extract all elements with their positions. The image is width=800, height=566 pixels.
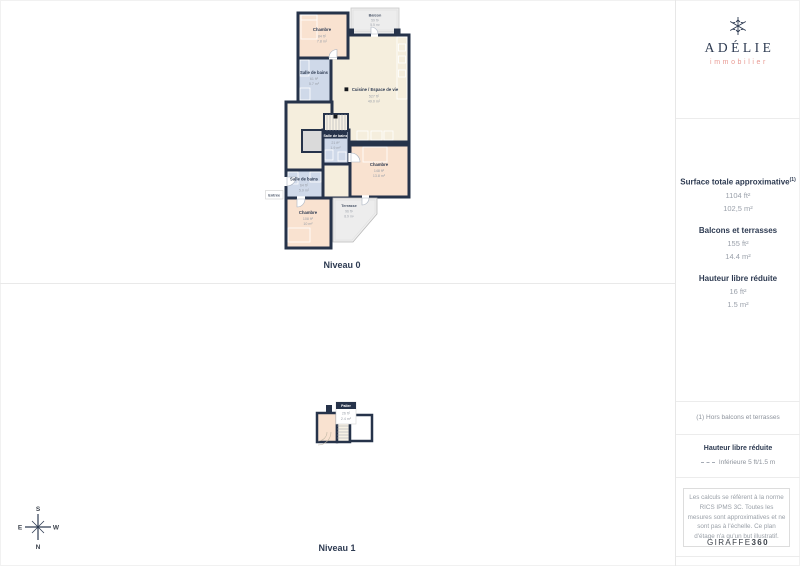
height-legend-value: Inférieure 5 ft/1.5 m bbox=[719, 459, 775, 466]
cuisine-area-m: 49.0 m² bbox=[368, 100, 381, 104]
chambre-right-area-ft: 148 ft² bbox=[374, 169, 385, 173]
surface-group: Surface totale approximative(1) 1104 ft²… bbox=[676, 177, 800, 213]
compass-rose: S N E W bbox=[18, 506, 60, 551]
sdb-left-area-m: 5.9 m² bbox=[299, 189, 310, 193]
balcon-label: Balcon bbox=[369, 14, 382, 18]
sdb-left-label: Salle de bains bbox=[290, 177, 319, 182]
chambre-bottom-area-m: 10 m² bbox=[303, 222, 313, 226]
surface-ft: 1104 ft² bbox=[676, 191, 800, 200]
sdb-mid-area-ft: 21 ft² bbox=[331, 141, 340, 145]
divider bbox=[676, 556, 800, 557]
balconies-m: 14.4 m² bbox=[676, 252, 800, 261]
brand-subtitle: immobilier bbox=[676, 59, 800, 66]
metrics-block: Surface totale approximative(1) 1104 ft²… bbox=[676, 177, 800, 322]
balcon-area-ft: 59 ft² bbox=[371, 19, 380, 23]
palier-room bbox=[317, 413, 337, 442]
balconies-ft: 155 ft² bbox=[676, 239, 800, 248]
floorplan-page: Chambre 84 ft² 7.8 m² Balcon 59 ft² 5.5 … bbox=[0, 0, 800, 566]
balconies-group: Balcons et terrasses 155 ft² 14.4 m² bbox=[676, 226, 800, 261]
chambre-tl-area-m: 7.8 m² bbox=[317, 40, 328, 44]
cuisine-area-ft: 527 ft² bbox=[369, 95, 380, 99]
agency-logo: ADÉLIE immobilier bbox=[676, 16, 800, 66]
sdb-tl-area-ft: 61 ft² bbox=[310, 77, 319, 81]
niveau1-plan: Palier 26 ft² 2.4 m² bbox=[317, 402, 372, 445]
footnote-text: (1) Hors balcons et terrasses bbox=[676, 414, 800, 421]
height-title: Hauteur libre réduite bbox=[676, 274, 800, 283]
chambre-tl-label: Chambre bbox=[313, 27, 332, 32]
chambre-bottom-area-ft: 108 ft² bbox=[303, 217, 314, 221]
surface-footnote-marker: (1) bbox=[790, 177, 796, 183]
corridor-b bbox=[323, 160, 350, 198]
brand-name: ADÉLIE bbox=[676, 40, 800, 56]
plan-area: Chambre 84 ft² 7.8 m² Balcon 59 ft² 5.5 … bbox=[0, 0, 675, 566]
niveau0-plan: Chambre 84 ft² 7.8 m² Balcon 59 ft² 5.5 … bbox=[266, 8, 410, 248]
divider bbox=[676, 434, 800, 435]
cuisine-label: Cuisine / Espace de vie bbox=[352, 87, 399, 92]
height-legend-title: Hauteur libre réduite bbox=[676, 445, 800, 452]
snowflake-icon bbox=[728, 16, 748, 36]
compass-north: N bbox=[36, 544, 41, 551]
compass-east: E bbox=[18, 525, 23, 532]
surface-m: 102,5 m² bbox=[676, 204, 800, 213]
height-ft: 16 ft² bbox=[676, 287, 800, 296]
giraffe-text: GIRAFFE bbox=[707, 538, 751, 547]
dashed-line-icon bbox=[701, 462, 715, 463]
divider bbox=[676, 118, 800, 119]
panel-divider bbox=[0, 283, 675, 284]
terrasse-label: Terrasse bbox=[341, 204, 357, 208]
palier-label: Palier bbox=[341, 404, 351, 408]
sdb-mid-area-m: 1.9 m² bbox=[330, 146, 341, 150]
surface-title: Surface totale approximative(1) bbox=[676, 177, 800, 187]
storage-room bbox=[302, 130, 323, 152]
giraffe-360: 360 bbox=[751, 538, 769, 547]
niveau0-title: Niveau 0 bbox=[262, 260, 422, 270]
height-m: 1.5 m² bbox=[676, 300, 800, 309]
compass-south: S bbox=[36, 506, 41, 513]
palier-area-ft: 26 ft² bbox=[342, 412, 351, 416]
balconies-title: Balcons et terrasses bbox=[676, 226, 800, 235]
giraffe360-logo: GIRAFFE360 bbox=[676, 538, 800, 547]
balcon-area-m: 5.5 m² bbox=[370, 23, 380, 27]
niveau1-title: Niveau 1 bbox=[257, 543, 417, 553]
sdb-left-area-ft: 64 ft² bbox=[300, 184, 309, 188]
info-sidebar: ADÉLIE immobilier Surface totale approxi… bbox=[675, 0, 800, 566]
compass-star-icon bbox=[25, 514, 51, 540]
sdb-tl-label: Salle de bains bbox=[300, 70, 329, 75]
compass-west: W bbox=[53, 525, 60, 532]
terrasse-area-m: 8.9 m² bbox=[344, 215, 354, 219]
divider bbox=[676, 477, 800, 478]
height-group: Hauteur libre réduite 16 ft² 1.5 m² bbox=[676, 274, 800, 309]
terrasse-area-ft: 96 ft² bbox=[345, 210, 354, 214]
sdb-mid-label: Salle de bains bbox=[324, 134, 348, 138]
divider bbox=[676, 401, 800, 402]
palier-area-m: 2.4 m² bbox=[341, 417, 352, 421]
chambre-bottom-label: Chambre bbox=[299, 210, 318, 215]
chambre-right-area-m: 13.8 m² bbox=[373, 174, 386, 178]
stairs-niveau0 bbox=[324, 114, 348, 131]
sdb-tl-area-m: 5.7 m² bbox=[309, 82, 320, 86]
chambre-tl-area-ft: 84 ft² bbox=[318, 35, 327, 39]
height-legend-row: Inférieure 5 ft/1.5 m bbox=[676, 459, 800, 466]
chambre-right-label: Chambre bbox=[370, 162, 389, 167]
chimney bbox=[326, 405, 332, 413]
entree-label: Entrée bbox=[268, 193, 280, 197]
surface-title-text: Surface totale approximative bbox=[680, 178, 789, 187]
kitchen-icon bbox=[345, 87, 349, 91]
